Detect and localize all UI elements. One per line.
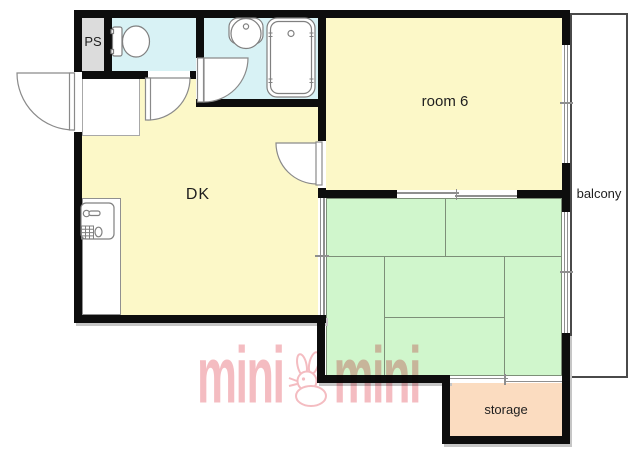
balcony-label: balcony <box>570 186 628 201</box>
dk-label: DK <box>168 186 228 204</box>
wall-right-upper <box>562 13 570 45</box>
room6-window-line <box>567 45 568 163</box>
ps-label: PS <box>82 34 104 49</box>
rabbit-mascot-icon <box>287 351 331 408</box>
entry-door-swing <box>17 73 74 130</box>
wall-right-middle <box>562 163 570 212</box>
entrance-step <box>82 75 140 136</box>
minimini-watermark: mini mini <box>197 351 420 408</box>
wall-room6-bottom-right <box>517 190 562 198</box>
room6-window-tick <box>560 102 573 104</box>
tatami-window-tick <box>560 271 573 273</box>
wall-dk-bottom <box>74 315 326 323</box>
wall-bathroom-bottom <box>196 99 326 107</box>
sliding-door-line <box>397 192 459 194</box>
watermark-text-right: mini <box>334 344 421 408</box>
sliding-door-line <box>450 378 508 380</box>
wall-left-lower <box>74 132 82 323</box>
sliding-door-tick <box>456 189 458 200</box>
room6-label: room 6 <box>399 93 491 110</box>
wall-room6-bottom-left <box>326 190 397 198</box>
wall-right-lower <box>562 333 570 444</box>
tatami-mat <box>326 198 446 257</box>
wall-toilet-bathroom <box>196 18 204 58</box>
wall-ps-toilet <box>104 18 112 71</box>
bathroom-door-opening <box>196 58 204 99</box>
tatami-mat <box>384 256 505 318</box>
sliding-door-line <box>505 381 562 383</box>
wall-storage-left <box>442 375 450 444</box>
dk-room-right <box>196 107 318 315</box>
kitchen-counter <box>82 198 121 315</box>
sliding-door-tick <box>504 374 506 385</box>
storage-label: storage <box>450 402 562 417</box>
sliding-door-line <box>455 195 517 197</box>
sliding-door-tick <box>315 255 329 257</box>
tatami-mat <box>445 198 562 257</box>
wall-storage-bottom <box>442 436 570 444</box>
room6-door-opening <box>318 141 326 188</box>
wall-top <box>74 10 570 18</box>
wall-room6-left-upper <box>318 18 326 141</box>
tatami-mat <box>504 256 562 376</box>
watermark-text-left: mini <box>197 344 284 408</box>
wall-toilet-bottom-left <box>82 71 148 79</box>
entry-door-opening <box>74 72 82 132</box>
toilet-room <box>112 18 196 71</box>
room6-window-line <box>564 45 565 163</box>
floor-plan: PS DK room 6 balcony storage mini mini <box>0 0 640 453</box>
toilet-door-opening <box>148 71 190 79</box>
bathroom <box>204 18 318 99</box>
wall-left-upper <box>74 10 82 72</box>
